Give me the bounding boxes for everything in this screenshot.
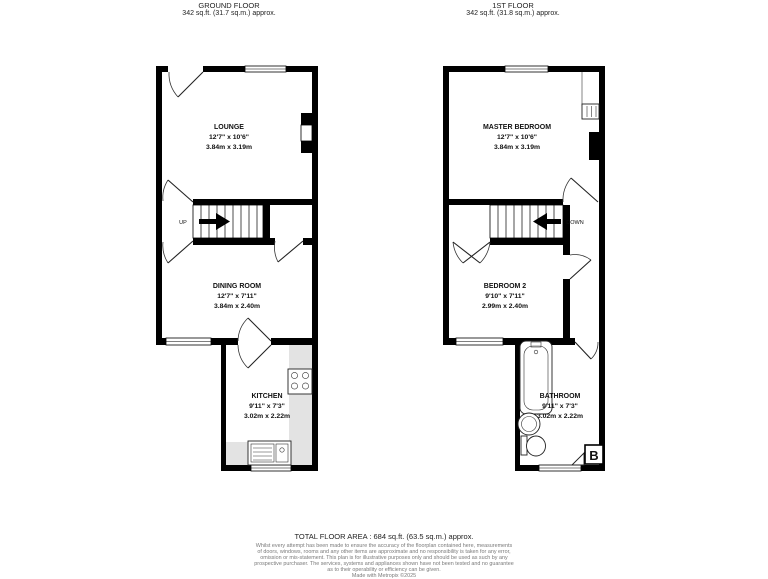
ground-floor-plan: UP LOUNGE 12'7" x 10'6" 3.84m x 3.19m DI… — [153, 64, 323, 479]
first-floor-header: 1ST FLOOR 342 sq.ft. (31.8 sq.m.) approx… — [433, 2, 593, 18]
kitchen-name: KITCHEN — [251, 393, 282, 400]
bathroom-label: BATHROOM 9'11" x 7'3" 3.02m x 2.22m — [537, 393, 583, 420]
first-floor-plan: DOWN B MASTER BEDROOM 12'7" x 10'6" 3.84… — [441, 64, 611, 479]
kitchen-metric: 3.02m x 2.22m — [244, 413, 290, 420]
bedroom2-name: BEDROOM 2 — [484, 283, 527, 290]
down-label: DOWN — [566, 220, 583, 226]
kitchen-imperial: 9'11" x 7'3" — [249, 403, 285, 410]
lounge-label: LOUNGE 12'7" x 10'6" 3.84m x 3.19m — [206, 124, 252, 151]
dining-window — [166, 338, 211, 345]
front-door — [169, 72, 203, 97]
radiator-icon — [582, 72, 599, 119]
boiler-label: B — [589, 448, 598, 463]
total-floor-area: TOTAL FLOOR AREA : 684 sq.ft. (63.5 sq.m… — [0, 532, 768, 541]
bathroom-name: BATHROOM — [540, 393, 581, 400]
landing-door — [570, 255, 591, 279]
dining-name: DINING ROOM — [213, 283, 261, 290]
lounge-door — [163, 180, 193, 202]
up-label: UP — [179, 220, 187, 226]
kitchen-window — [251, 465, 291, 471]
master-door — [563, 178, 598, 202]
bedroom2-metric: 2.99m x 2.40m — [482, 303, 528, 310]
master-metric: 3.84m x 3.19m — [494, 144, 540, 151]
bathroom-imperial: 9'11" x 7'3" — [542, 403, 578, 410]
bedroom2-door — [453, 242, 490, 263]
dining-label: DINING ROOM 12'7" x 7'11" 3.84m x 2.40m — [213, 283, 261, 310]
master-window — [505, 66, 548, 72]
bathroom-metric: 3.02m x 2.22m — [537, 413, 583, 420]
ground-floor-title: GROUND FLOOR — [149, 2, 309, 10]
ground-floor-header: GROUND FLOOR 342 sq.ft. (31.7 sq.m.) app… — [149, 2, 309, 18]
kitchen-sink-icon — [248, 441, 291, 465]
bathroom-door — [575, 342, 598, 359]
kitchen-door — [238, 318, 271, 368]
disclaimer: Whilst every attempt has been made to en… — [0, 544, 768, 579]
master-label: MASTER BEDROOM 12'7" x 10'6" 3.84m x 3.1… — [483, 124, 551, 151]
toilet-icon — [521, 436, 546, 456]
master-imperial: 12'7" x 10'6" — [497, 134, 537, 141]
cupboard-door-icon — [572, 453, 584, 465]
dining-door-left — [163, 241, 193, 263]
dining-door-right — [274, 241, 303, 262]
master-name: MASTER BEDROOM — [483, 124, 551, 131]
lounge-metric: 3.84m x 3.19m — [206, 144, 252, 151]
lounge-name: LOUNGE — [214, 124, 244, 131]
chimney-breast — [301, 113, 312, 153]
bedroom2-window — [456, 338, 503, 345]
first-floor-area: 342 sq.ft. (31.8 sq.m.) approx. — [433, 10, 593, 18]
boiler-cupboard: B — [572, 445, 603, 465]
first-floor-title: 1ST FLOOR — [433, 2, 593, 10]
lounge-imperial: 12'7" x 10'6" — [209, 134, 249, 141]
hob-icon — [288, 369, 312, 394]
metropix-credit: Made with Metropix ©2025 — [0, 574, 768, 579]
lounge-window — [245, 66, 286, 72]
dining-metric: 3.84m x 2.40m — [214, 303, 260, 310]
dining-imperial: 12'7" x 7'11" — [217, 293, 257, 300]
stairs-up: UP — [179, 205, 263, 238]
bedroom2-label: BEDROOM 2 9'10" x 7'11" 2.99m x 2.40m — [482, 283, 528, 310]
bedroom2-imperial: 9'10" x 7'11" — [485, 293, 525, 300]
ground-floor-area: 342 sq.ft. (31.7 sq.m.) approx. — [149, 10, 309, 18]
kitchen-label: KITCHEN 9'11" x 7'3" 3.02m x 2.22m — [244, 393, 290, 420]
bathroom-window — [539, 465, 581, 471]
